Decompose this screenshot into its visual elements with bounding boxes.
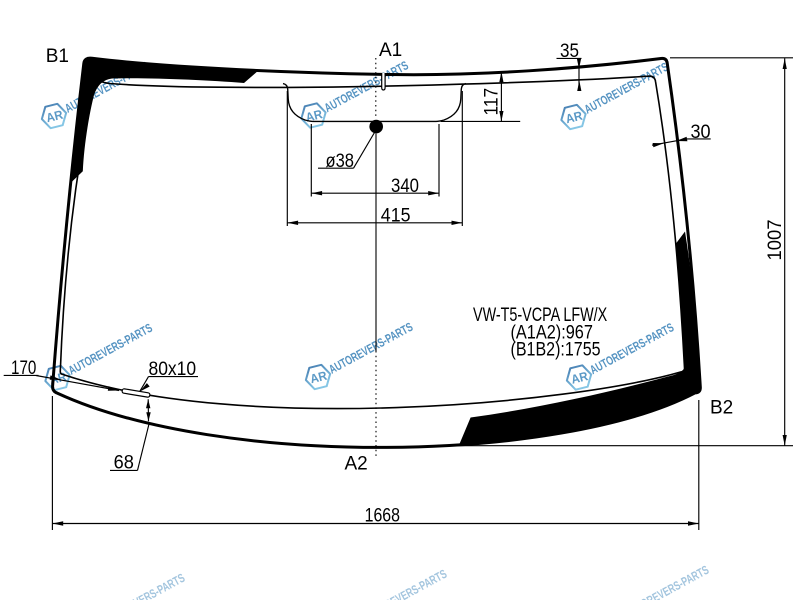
svg-text:AUTOREVERS-PARTS: AUTOREVERS-PARTS bbox=[327, 320, 416, 377]
svg-text:117: 117 bbox=[481, 88, 502, 116]
svg-text:A2: A2 bbox=[345, 454, 368, 475]
svg-text:AUTOREVERS-PARTS: AUTOREVERS-PARTS bbox=[361, 567, 450, 600]
svg-text:AR: AR bbox=[564, 108, 584, 126]
svg-text:B1: B1 bbox=[46, 46, 69, 67]
svg-text:AR: AR bbox=[570, 369, 590, 387]
svg-text:AUTOREVERS-PARTS: AUTOREVERS-PARTS bbox=[66, 321, 155, 378]
svg-text:AR: AR bbox=[304, 107, 324, 125]
svg-text:(B1B2):1755: (B1B2):1755 bbox=[511, 338, 601, 360]
svg-text:340: 340 bbox=[391, 175, 419, 196]
svg-text:AR: AR bbox=[45, 107, 65, 125]
svg-text:AR: AR bbox=[309, 368, 329, 386]
svg-text:B2: B2 bbox=[710, 398, 733, 419]
svg-text:A1: A1 bbox=[379, 40, 402, 61]
svg-text:415: 415 bbox=[381, 204, 411, 226]
svg-text:1007: 1007 bbox=[764, 220, 785, 261]
svg-text:68: 68 bbox=[114, 451, 134, 472]
svg-text:80x10: 80x10 bbox=[149, 357, 197, 379]
svg-text:AUTOREVERS-PARTS: AUTOREVERS-PARTS bbox=[623, 563, 712, 600]
svg-text:1668: 1668 bbox=[365, 504, 400, 526]
svg-text:AUTOREVERS-PARTS: AUTOREVERS-PARTS bbox=[99, 571, 188, 600]
svg-text:AUTOREVERS-PARTS: AUTOREVERS-PARTS bbox=[582, 60, 671, 117]
svg-text:AUTOREVERS-PARTS: AUTOREVERS-PARTS bbox=[588, 321, 677, 378]
